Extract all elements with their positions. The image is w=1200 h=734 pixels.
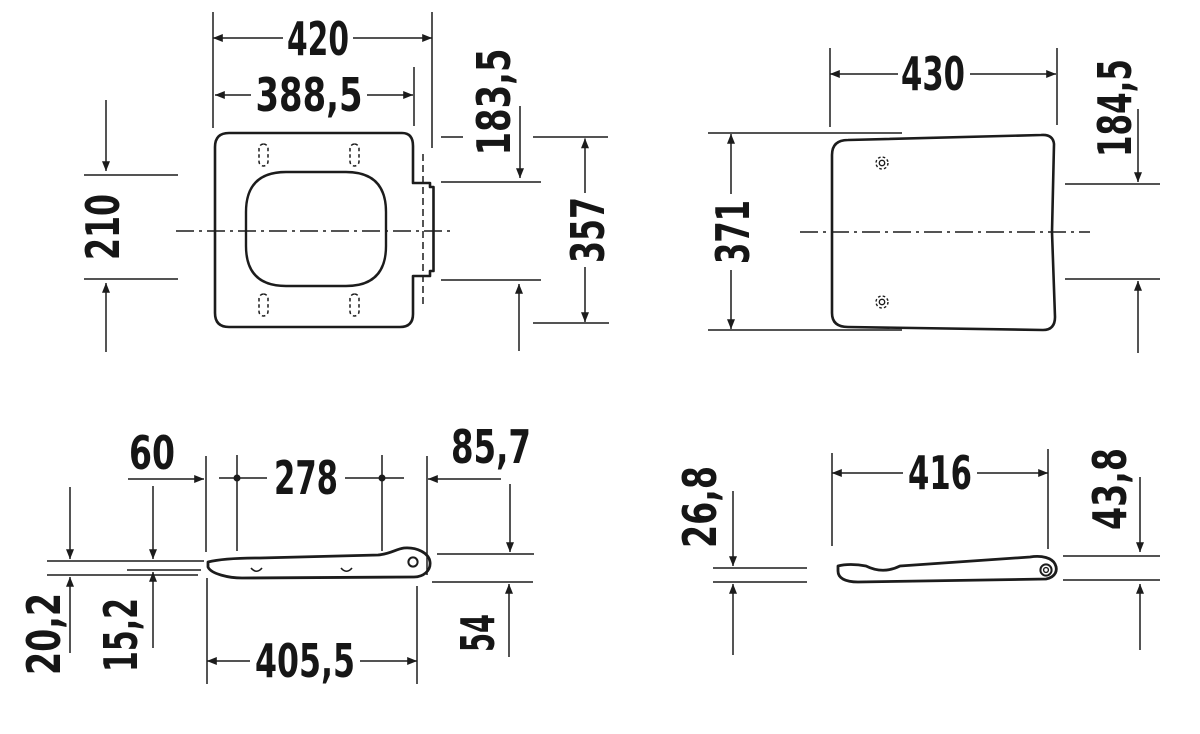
dim-label-seat-ring-thickness: 15,2	[94, 598, 148, 672]
dim-label-lid-front-thickness: 26,8	[673, 466, 727, 548]
dim-lid-length: 416	[832, 446, 1048, 549]
dim-label-seat-hinge-overhang: 85,7	[451, 420, 531, 474]
dim-seat-body-width: 388,5	[215, 67, 414, 126]
dimension-drawing: 420 388,5 210 183,5	[0, 0, 1200, 734]
hinge-hole-icon	[1040, 564, 1051, 575]
dim-label-seat-total-thickness: 20,2	[17, 593, 71, 675]
dim-seat-hinge-overhang: 85,7	[427, 420, 531, 575]
dim-lid-front-thickness: 26,8	[673, 466, 733, 655]
dim-seat-ring-thickness: 15,2	[94, 486, 153, 672]
dim-seat-hinge-height: 54	[432, 484, 534, 657]
lid-top-view: 430 371 184,5	[706, 47, 1160, 353]
dim-seat-cutout-length: 210	[76, 100, 178, 352]
dim-lid-hinge-thickness: 43,8	[1063, 448, 1160, 650]
seat-profile-view: 60 278 85,7 20,2 15,2	[17, 420, 534, 688]
dim-label-lid-hinge-offset: 184,5	[1088, 59, 1142, 157]
dim-label-lid-overall-width: 430	[901, 47, 965, 101]
dimension-dot	[379, 475, 386, 482]
lid-profile-view: 26,8 416 43,8	[673, 446, 1160, 655]
dimension-dot	[234, 475, 241, 482]
dim-seat-overall-length: 357	[533, 139, 615, 324]
dim-label-lid-hinge-thickness: 43,8	[1083, 448, 1137, 530]
dim-label-seat-bumper-spacing: 278	[274, 451, 338, 505]
dim-seat-front-height: 60	[128, 426, 206, 552]
dim-label-seat-hinge-offset: 183,5	[467, 49, 521, 156]
dim-lid-overall-width: 430	[830, 47, 1057, 127]
seat-top-view: 420 388,5 210 183,5	[76, 12, 615, 352]
dim-lid-hinge-offset: 184,5	[1065, 59, 1160, 353]
seat-cutout	[246, 172, 386, 286]
dim-label-lid-length: 416	[908, 446, 972, 500]
dim-label-seat-overall-width: 420	[287, 12, 349, 66]
dim-label-seat-overall-length: 357	[561, 197, 615, 263]
dim-label-seat-cutout-length: 210	[76, 194, 130, 260]
technical-drawing-page: 420 388,5 210 183,5	[0, 0, 1200, 734]
dim-seat-underside-length: 405,5	[207, 578, 417, 688]
dim-label-seat-hinge-height: 54	[451, 614, 505, 652]
dim-label-seat-body-width: 388,5	[256, 68, 363, 122]
dim-label-seat-front-height: 60	[129, 426, 175, 480]
dim-label-lid-overall-length: 371	[706, 200, 760, 264]
dim-seat-bumper-spacing: 278	[219, 451, 404, 551]
dim-label-seat-underside-length: 405,5	[255, 634, 355, 688]
dim-seat-total-thickness: 20,2	[17, 487, 71, 675]
hinge-hole-icon	[408, 557, 417, 566]
seat-profile-outline	[208, 548, 430, 578]
lid-profile-outline	[838, 556, 1056, 582]
